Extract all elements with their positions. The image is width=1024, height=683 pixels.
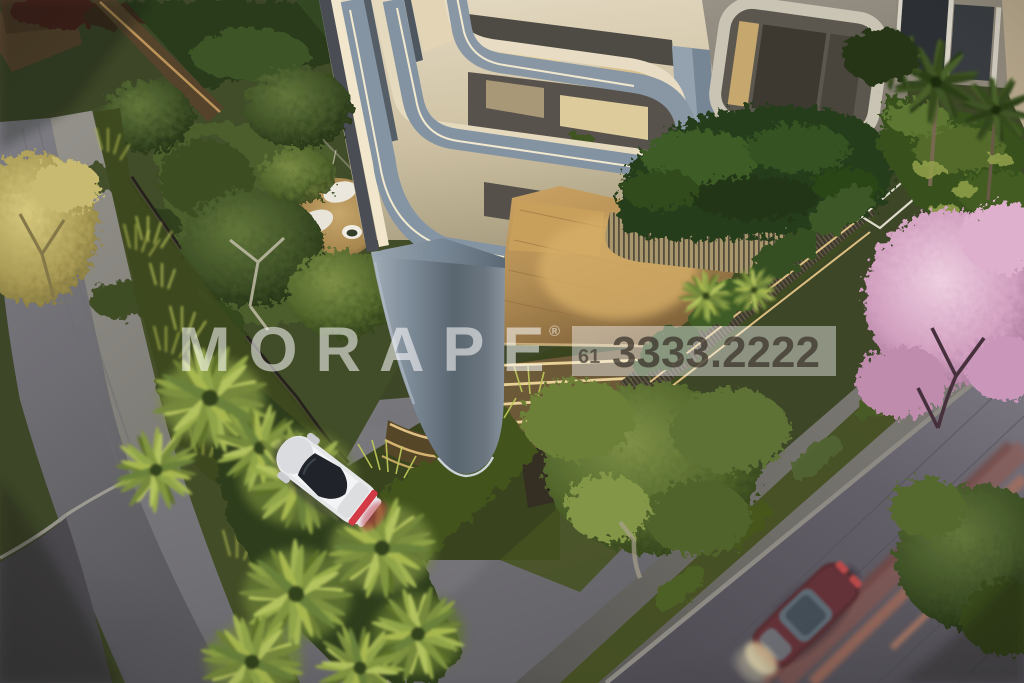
svg-text:MORAPE: MORAPE: [178, 315, 563, 385]
svg-text:3333.2222: 3333.2222: [612, 328, 820, 377]
svg-text:®: ®: [549, 323, 560, 340]
svg-text:61: 61: [578, 346, 600, 368]
